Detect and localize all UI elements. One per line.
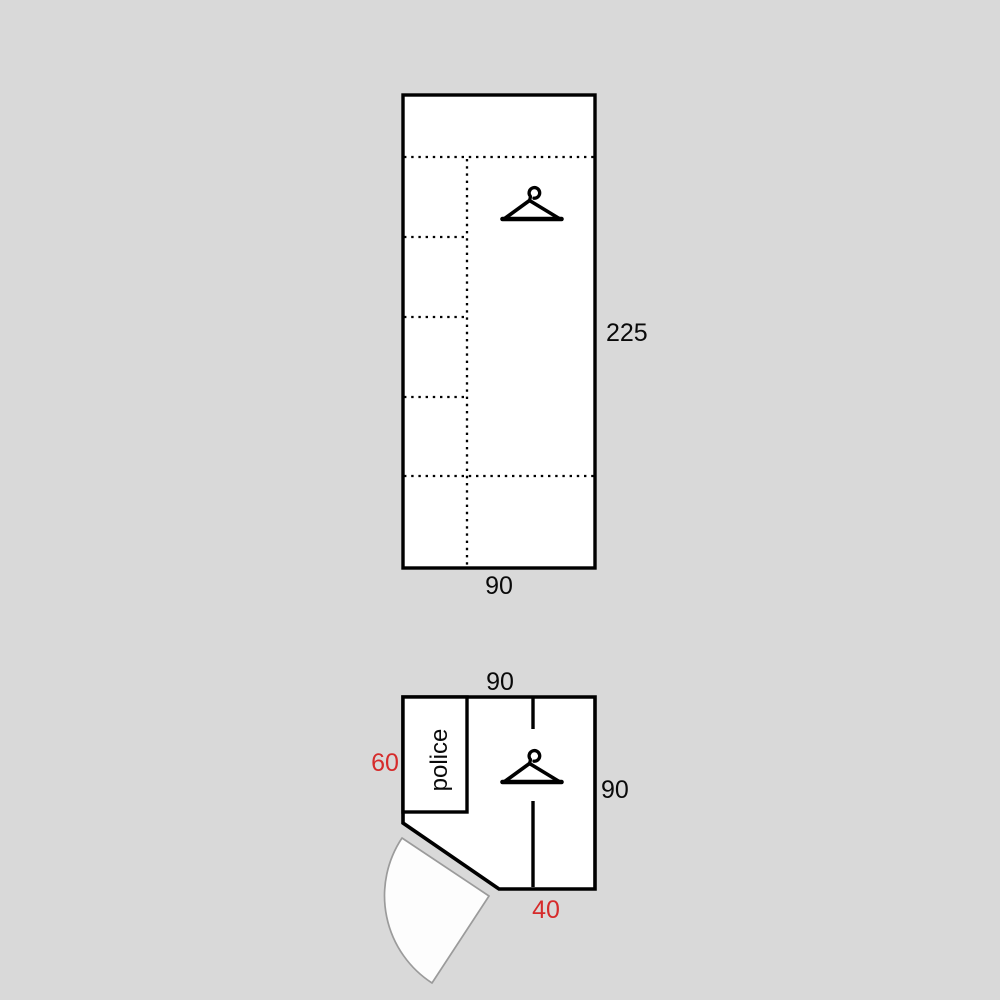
plan-left-section-dimension: 60 — [371, 749, 399, 777]
front-width-dimension: 90 — [485, 572, 513, 600]
plan-right-depth-dimension: 90 — [601, 776, 629, 804]
police-compartment-label: police — [426, 729, 453, 792]
wardrobe-drawing-canvas: 225 90 police 90 90 60 40 — [0, 0, 1000, 1000]
front-cabinet-outline — [403, 95, 595, 568]
plan-top-width-dimension: 90 — [486, 668, 514, 696]
plan-door-width-dimension: 40 — [532, 896, 560, 924]
top-plan-view: police 90 90 60 40 — [371, 668, 629, 983]
front-height-dimension: 225 — [606, 319, 648, 347]
front-elevation-view: 225 90 — [403, 95, 648, 600]
